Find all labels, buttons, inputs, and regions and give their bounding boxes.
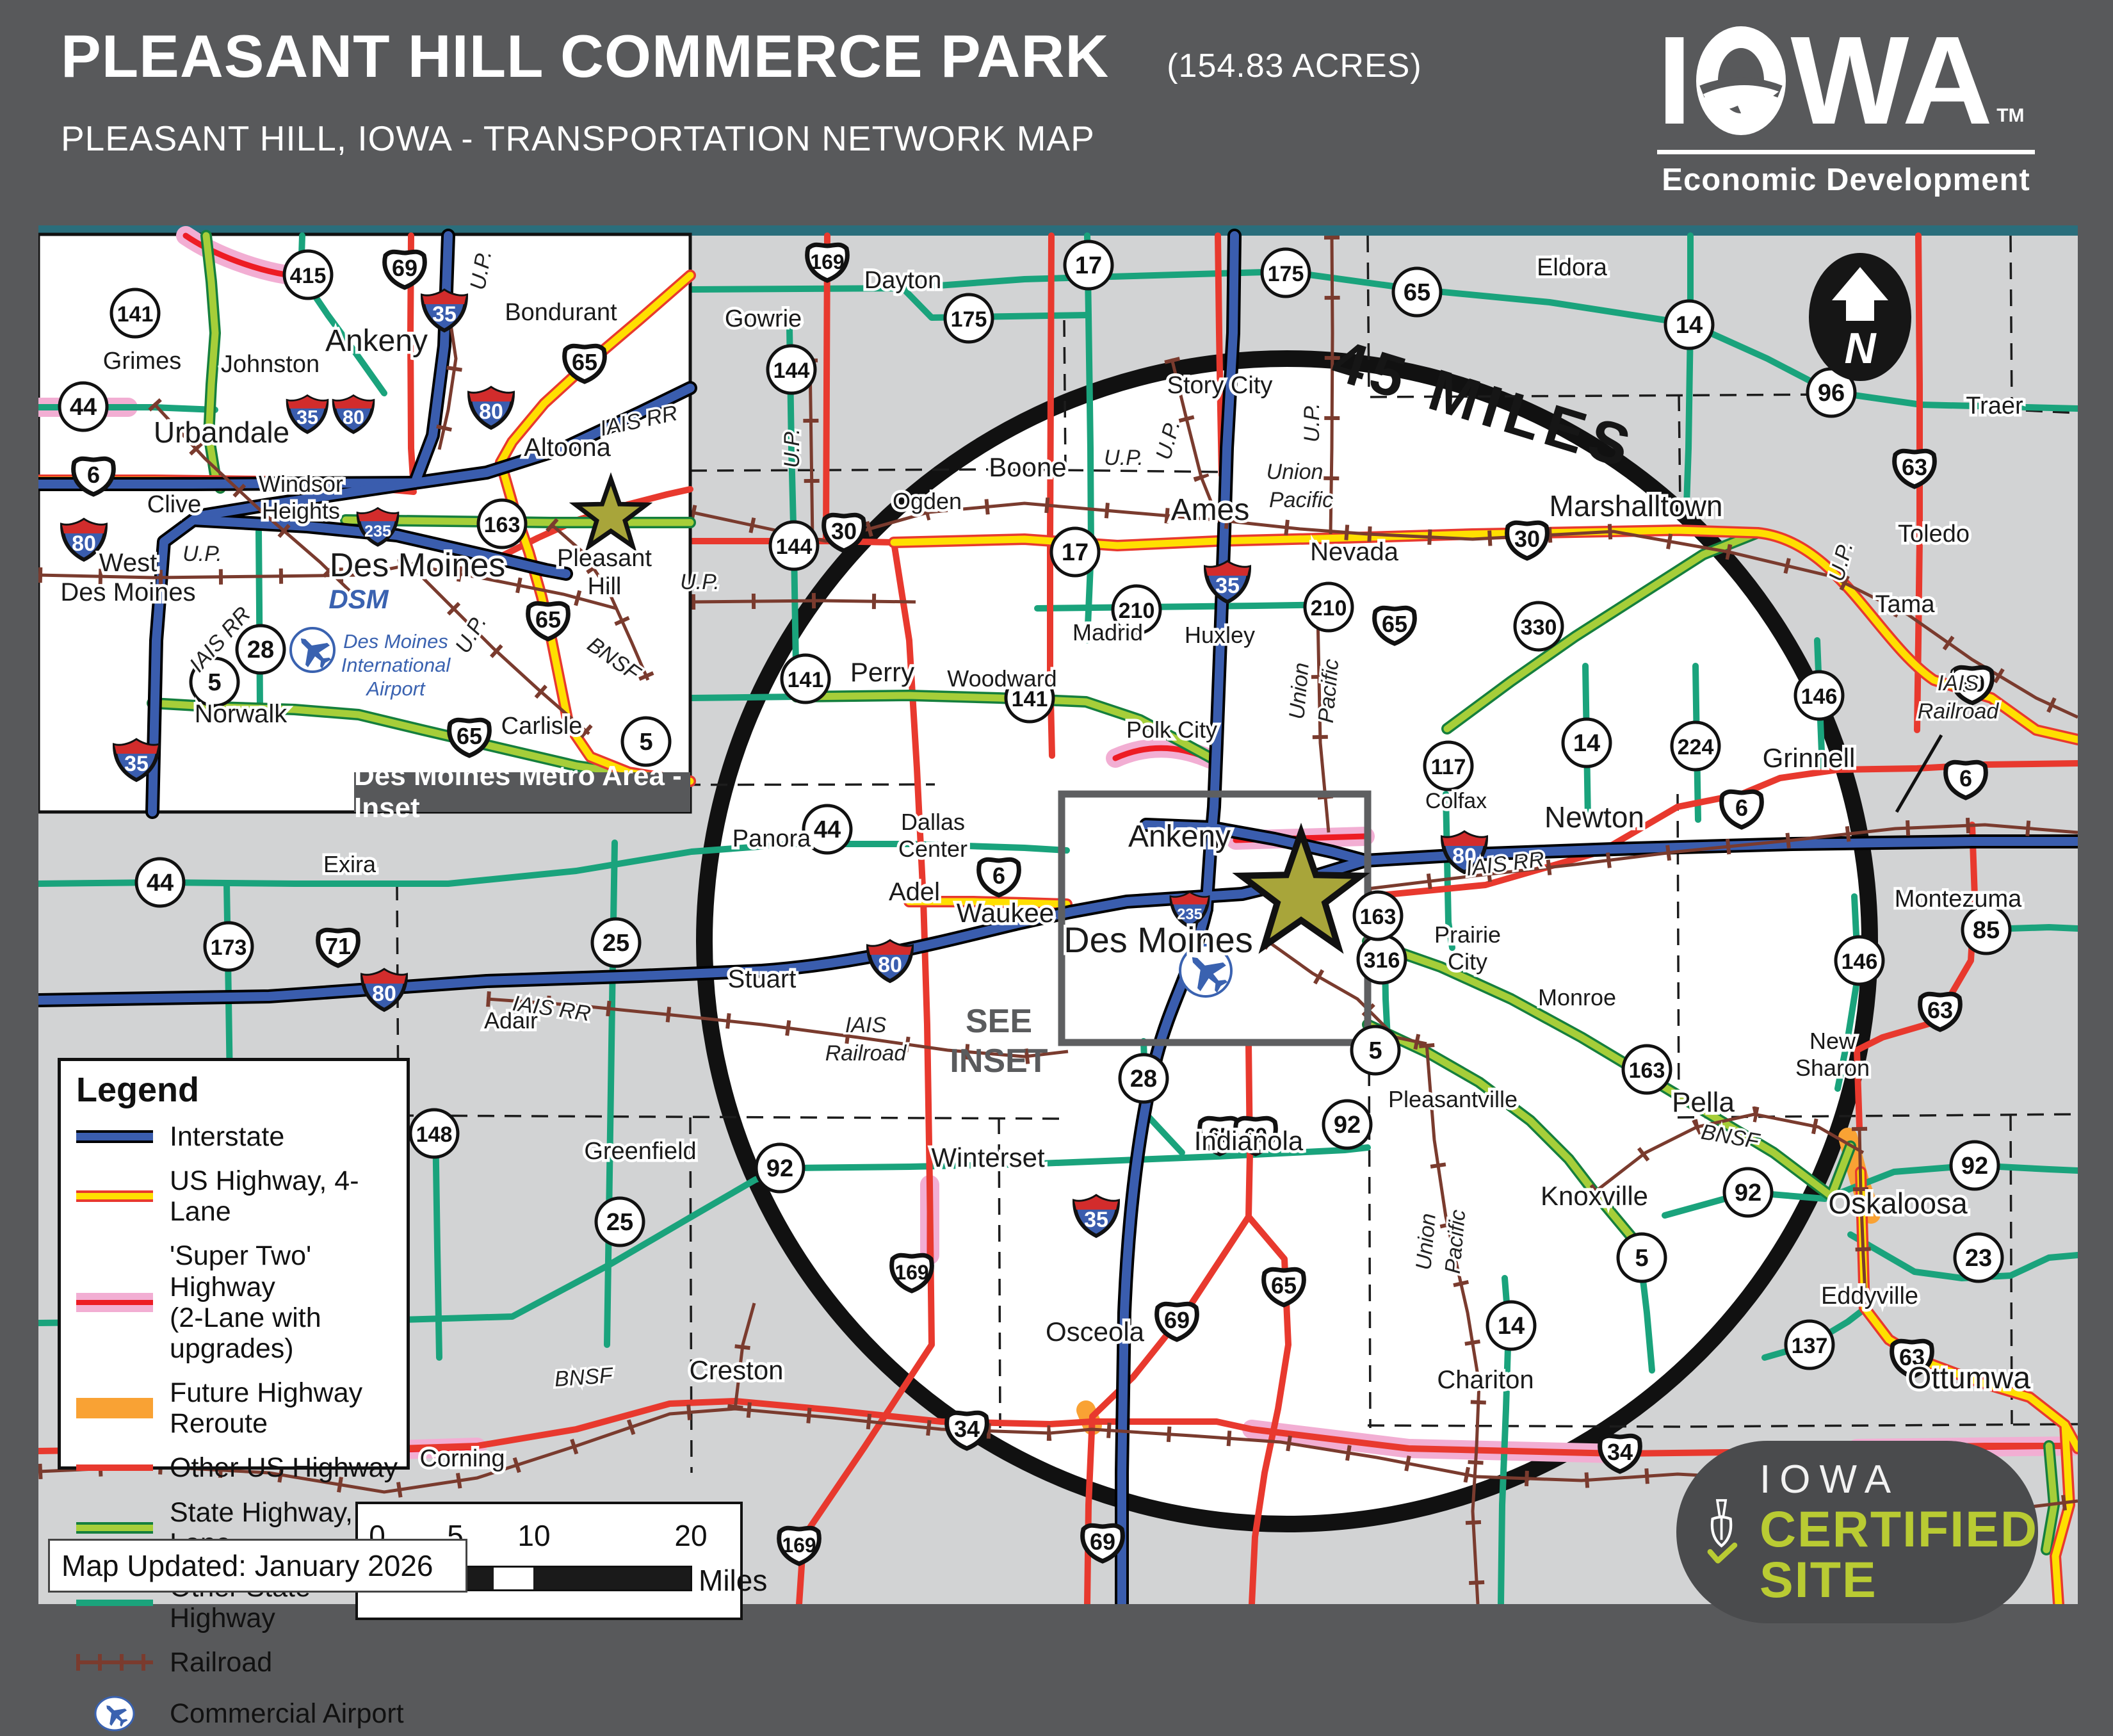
railroad-label: U.P. — [1104, 446, 1144, 470]
iowa-certified-site-badge: IOWA CERTIFIED SITE — [1676, 1441, 2038, 1623]
railroad-label: IAIS — [845, 1013, 887, 1037]
city-label: Airport — [365, 677, 426, 700]
city-label: Pella — [1672, 1087, 1735, 1118]
shield-number: 44 — [70, 394, 97, 421]
legend-item-future-reroute: Future Highway Reroute — [76, 1377, 407, 1439]
city-label: DSM — [328, 584, 389, 614]
city-label: Colfax — [1425, 789, 1487, 813]
city-label: West — [99, 549, 157, 577]
city-label: Pleasant — [557, 545, 652, 572]
city-label: Windsor — [259, 471, 343, 497]
shield-number: 92 — [1961, 1153, 1988, 1180]
city-label: Grinnell — [1763, 743, 1856, 773]
route-shield-c-330: 330 — [1515, 603, 1562, 650]
shield-number: 35 — [1215, 574, 1240, 598]
future-reroute-icon — [76, 1398, 153, 1418]
route-shield-c-44: 44 — [136, 859, 184, 906]
route-shield-c-25: 25 — [592, 919, 640, 966]
shield-number: 35 — [296, 407, 318, 428]
shield-number: 69 — [1090, 1529, 1115, 1555]
route-shield-c-92: 92 — [1951, 1142, 1998, 1189]
shield-number: 330 — [1521, 615, 1557, 640]
inset-caption: Des Moines Metro Area - Inset — [354, 772, 690, 812]
shield-number: 35 — [1084, 1208, 1108, 1232]
shield-number: 34 — [954, 1416, 980, 1442]
shield-number: 224 — [1678, 735, 1714, 759]
shield-number: 69 — [1164, 1307, 1190, 1333]
route-shield-c-44: 44 — [60, 383, 107, 430]
city-label: Ankeny — [1128, 820, 1231, 854]
route-shield-c-163: 163 — [1354, 892, 1402, 939]
shield-number: 141 — [788, 668, 824, 692]
route-shield-c-144: 144 — [768, 346, 815, 393]
city-label: Eldora — [1537, 254, 1608, 281]
city-label: Creston — [689, 1355, 783, 1385]
shield-number: 117 — [1431, 755, 1466, 779]
shield-number: 96 — [1818, 380, 1845, 407]
shield-number: 169 — [782, 1534, 816, 1557]
city-label: Des Moines — [330, 547, 506, 584]
route-shield-c-17: 17 — [1065, 241, 1112, 289]
scale-tick-20: 20 — [674, 1518, 707, 1553]
shield-number: 92 — [1334, 1112, 1361, 1139]
shield-number: 65 — [457, 723, 482, 749]
city-label: Grimes — [103, 348, 181, 375]
shield-number: 169 — [895, 1261, 928, 1284]
city-label: Knoxville — [1541, 1181, 1648, 1211]
city-label: Nevada — [1310, 538, 1399, 566]
other-us-line-icon — [76, 1464, 153, 1471]
badge-word-certified: CERTIFIED — [1760, 1504, 2038, 1554]
route-shield-c-92: 92 — [1724, 1169, 1772, 1216]
road-teal — [1087, 236, 1091, 640]
route-shield-c-117: 117 — [1425, 742, 1472, 790]
route-shield-c-23: 23 — [1955, 1234, 2002, 1281]
shield-number: 415 — [290, 264, 327, 288]
shield-number: 316 — [1364, 948, 1400, 973]
shield-number: 28 — [1130, 1066, 1157, 1092]
route-shield-c-5: 5 — [622, 718, 670, 765]
shield-number: 35 — [432, 302, 457, 327]
city-label: Toledo — [1898, 521, 1970, 548]
shield-number: 17 — [1062, 539, 1089, 566]
city-label: Norwalk — [195, 700, 287, 728]
shield-number: 92 — [766, 1155, 793, 1182]
shield-number: 35 — [124, 752, 149, 776]
railroad-label: Union — [1284, 661, 1314, 720]
shield-number: 23 — [1965, 1245, 1992, 1272]
shield-number: 14 — [1573, 730, 1600, 757]
shield-number: 80 — [372, 982, 396, 1006]
city-label: Urbandale — [154, 416, 289, 449]
see-inset-label: INSET — [950, 1042, 1048, 1080]
shield-number: 69 — [392, 255, 417, 281]
north-letter: N — [1844, 324, 1877, 373]
city-label: Prairie — [1434, 921, 1501, 948]
city-label: Clive — [147, 491, 201, 518]
shield-number: 175 — [1268, 262, 1304, 286]
legend-item-super-two: 'Super Two' Highway (2-Lane with upgrade… — [76, 1240, 407, 1364]
city-label: Adel — [889, 878, 940, 906]
city-label: Dallas — [901, 809, 965, 835]
city-label: Boone — [989, 452, 1066, 482]
city-label: Montezuma — [1895, 886, 2022, 913]
route-shield-c-415: 415 — [284, 251, 332, 298]
railroad-label: Railroad — [825, 1041, 907, 1066]
road-teal — [435, 1124, 439, 1358]
shield-number: 44 — [814, 816, 841, 843]
north-arrow-icon: N — [1809, 253, 1911, 381]
city-label: Woodward — [947, 665, 1056, 692]
shield-number: 144 — [776, 535, 813, 559]
shield-number: 25 — [603, 930, 629, 957]
city-label: Gowrie — [725, 305, 802, 332]
railroad-line-icon — [76, 1654, 153, 1671]
shield-number: 30 — [1514, 526, 1540, 552]
map-updated-note: Map Updated: January 2026 — [48, 1539, 467, 1593]
railroad-label: Railroad — [1918, 699, 2000, 724]
route-shield-c-163: 163 — [478, 500, 526, 548]
shield-number: 169 — [810, 250, 844, 273]
shield-number: 44 — [147, 870, 174, 896]
city-label: Altoona — [524, 434, 611, 462]
shield-number: 65 — [1382, 611, 1407, 637]
legend-title: Legend — [76, 1070, 407, 1110]
route-shield-c-14: 14 — [1665, 301, 1713, 348]
shield-number: 80 — [479, 400, 503, 424]
route-shield-c-17: 17 — [1051, 528, 1099, 576]
route-shield-c-28: 28 — [1120, 1055, 1167, 1102]
shield-number: 163 — [484, 513, 521, 537]
city-label: City — [1448, 948, 1487, 975]
shield-number: 6 — [992, 863, 1005, 889]
route-shield-c-148: 148 — [410, 1110, 458, 1157]
shield-number: 65 — [572, 349, 597, 375]
route-shield-c-92: 92 — [1324, 1101, 1371, 1148]
city-label: Des Moines — [343, 630, 448, 653]
other-state-line-icon — [76, 1600, 153, 1606]
city-label: Sharon — [1795, 1055, 1870, 1081]
route-shield-c-5: 5 — [1618, 1234, 1665, 1281]
legend-item-other-us: Other US Highway — [76, 1452, 407, 1483]
city-label: Newton — [1544, 800, 1644, 834]
scale-tick-10: 10 — [517, 1518, 550, 1553]
city-label: Story City — [1167, 372, 1273, 399]
legend: Legend Interstate US Highway, 4-Lane 'Su… — [58, 1058, 410, 1470]
shield-number: 6 — [1735, 795, 1748, 821]
shield-number: 146 — [1842, 950, 1878, 974]
shield-number: 163 — [1360, 905, 1397, 929]
route-shield-c-316: 316 — [1358, 936, 1405, 983]
shield-number: 63 — [1927, 997, 1953, 1023]
city-label: Hill — [588, 573, 622, 600]
shield-number: 5 — [1368, 1037, 1382, 1064]
shield-number: 141 — [117, 302, 154, 327]
county-line — [1369, 1042, 1370, 1428]
city-label: Des Moines — [1064, 920, 1253, 960]
badge-word-iowa: IOWA — [1760, 1460, 2038, 1500]
page: { "header": { "title": "PLEASANT HILL CO… — [0, 0, 2113, 1633]
shield-number: 14 — [1676, 312, 1703, 339]
shield-number: 6 — [87, 462, 100, 488]
us-highway-line-icon — [76, 1190, 153, 1202]
shield-number: 30 — [831, 518, 857, 544]
city-label: Bondurant — [505, 299, 617, 326]
shield-number: 146 — [1801, 685, 1838, 709]
city-label: Panora — [733, 825, 811, 852]
shield-number: 65 — [535, 606, 561, 633]
railroad-label: Union — [1411, 1212, 1441, 1271]
city-label: Madrid — [1073, 619, 1143, 645]
route-shield-c-5: 5 — [1352, 1026, 1399, 1074]
route-shield-c-146: 146 — [1795, 672, 1843, 719]
railroad-label: Union — [1267, 460, 1324, 484]
route-shield-c-25: 25 — [596, 1198, 644, 1245]
shield-number: 25 — [606, 1209, 633, 1236]
city-label: Traer — [1966, 393, 2023, 419]
route-shield-c-141: 141 — [782, 655, 829, 702]
shield-number: 17 — [1075, 252, 1102, 279]
city-label: Ankeny — [325, 324, 428, 358]
badge-word-site: SITE — [1760, 1554, 2038, 1605]
shield-number: 80 — [72, 531, 96, 556]
city-label: Osceola — [1046, 1317, 1145, 1347]
city-label: Winterset — [931, 1142, 1045, 1172]
shield-number: 34 — [1607, 1439, 1633, 1465]
route-shield-c-224: 224 — [1672, 722, 1719, 770]
city-label: Exira — [323, 851, 376, 877]
shield-number: 5 — [207, 669, 221, 696]
legend-item-airport: Commercial Airport — [76, 1691, 407, 1736]
shield-number: 14 — [1498, 1313, 1525, 1340]
shield-number: 92 — [1735, 1180, 1761, 1206]
city-label: Indianola — [1194, 1126, 1304, 1156]
shield-number: 5 — [1635, 1245, 1648, 1272]
city-label: Perry — [850, 657, 914, 687]
route-shield-c-210: 210 — [1305, 583, 1352, 631]
road-teal — [692, 697, 797, 698]
shield-number: 163 — [1629, 1059, 1665, 1083]
super-two-line-icon — [76, 1293, 153, 1312]
route-shield-c-144: 144 — [770, 522, 818, 569]
railroad-label: U.P. — [680, 570, 720, 594]
city-label: Monroe — [1538, 984, 1616, 1010]
legend-item-us4: US Highway, 4-Lane — [76, 1165, 407, 1227]
route-shield-c-141: 141 — [111, 289, 159, 337]
inset-road-teal — [259, 531, 260, 710]
shield-number: 65 — [1404, 279, 1430, 306]
city-label: Ames — [1171, 493, 1250, 527]
city-label: Chariton — [1437, 1366, 1534, 1394]
city-label: Polk City — [1126, 717, 1217, 743]
shield-number: 85 — [1973, 917, 2000, 944]
city-label: Pleasantville — [1388, 1086, 1518, 1112]
city-label: International — [341, 654, 451, 676]
city-label: Corning — [419, 1445, 505, 1472]
route-shield-c-175: 175 — [945, 295, 992, 342]
shield-number: 148 — [416, 1123, 453, 1147]
city-label: Tama — [1875, 591, 1936, 618]
shovel-check-icon — [1699, 1459, 1744, 1606]
shield-number: 5 — [639, 729, 652, 756]
city-label: Marshalltown — [1550, 489, 1723, 523]
shield-number: 210 — [1311, 596, 1347, 621]
route-shield-c-137: 137 — [1786, 1321, 1833, 1368]
shield-number: 137 — [1792, 1334, 1828, 1358]
route-shield-c-175: 175 — [1262, 249, 1309, 296]
route-shield-c-65: 65 — [1393, 268, 1441, 316]
city-label: Huxley — [1185, 622, 1255, 648]
railroad — [692, 601, 916, 602]
railroad-label: BNSF — [554, 1363, 615, 1391]
city-label: Dayton — [864, 267, 941, 294]
city-label: New — [1809, 1028, 1856, 1054]
railroad-label: U.P. — [780, 428, 804, 468]
shield-number: 173 — [211, 936, 247, 960]
city-label: Greenfield — [584, 1138, 696, 1165]
city-label: Ogden — [893, 488, 962, 514]
city-label: Eddyville — [1821, 1283, 1918, 1310]
city-label: Des Moines — [60, 578, 195, 606]
route-shield-c-85: 85 — [1963, 906, 2010, 953]
road-teal — [1037, 604, 1337, 608]
city-label: Oskaloosa — [1828, 1187, 1968, 1220]
shield-number: 175 — [951, 307, 987, 332]
city-label: Center — [898, 836, 967, 862]
shield-number: 71 — [325, 933, 351, 959]
route-shield-c-92: 92 — [756, 1144, 804, 1192]
route-shield-c-146: 146 — [1836, 937, 1883, 984]
shield-number: 144 — [773, 359, 810, 383]
legend-item-interstate: Interstate — [76, 1121, 407, 1152]
city-label: Heights — [262, 498, 340, 524]
route-shield-c-163: 163 — [1623, 1046, 1671, 1093]
shield-number: 80 — [878, 953, 902, 977]
scale-unit: Miles — [699, 1563, 767, 1598]
route-shield-c-14: 14 — [1563, 719, 1610, 767]
route-shield-c-173: 173 — [205, 923, 252, 970]
interstate-line-icon — [76, 1130, 153, 1143]
city-label: Waukee — [957, 898, 1055, 928]
city-label: Carlisle — [501, 713, 583, 740]
shield-number: 65 — [1271, 1272, 1297, 1299]
railroad-label: IAIS — [1938, 671, 1979, 695]
shield-number: 6 — [1959, 765, 1972, 791]
city-label: Johnston — [221, 351, 320, 378]
city-label: Stuart — [728, 965, 797, 993]
shield-number: 28 — [247, 637, 274, 663]
legend-item-railroad: Railroad — [76, 1647, 407, 1678]
shield-number: 80 — [343, 407, 364, 428]
airport-icon — [76, 1691, 153, 1736]
state-highway-line-icon — [76, 1522, 153, 1534]
route-shield-c-14: 14 — [1487, 1302, 1535, 1349]
shield-number: 63 — [1902, 454, 1927, 480]
railroad-label: Pacific — [1269, 488, 1333, 512]
see-inset-label: SEE — [966, 1003, 1032, 1040]
shield-number: 235 — [364, 523, 391, 540]
inset-map: 141415693565803580644802351632853565565G… — [38, 234, 690, 812]
route-shield-c-28: 28 — [237, 626, 284, 673]
railroad-label: U.P. — [1300, 403, 1324, 442]
city-label: Ottumwa — [1907, 1361, 2030, 1395]
railroad-label: U.P. — [182, 542, 222, 566]
